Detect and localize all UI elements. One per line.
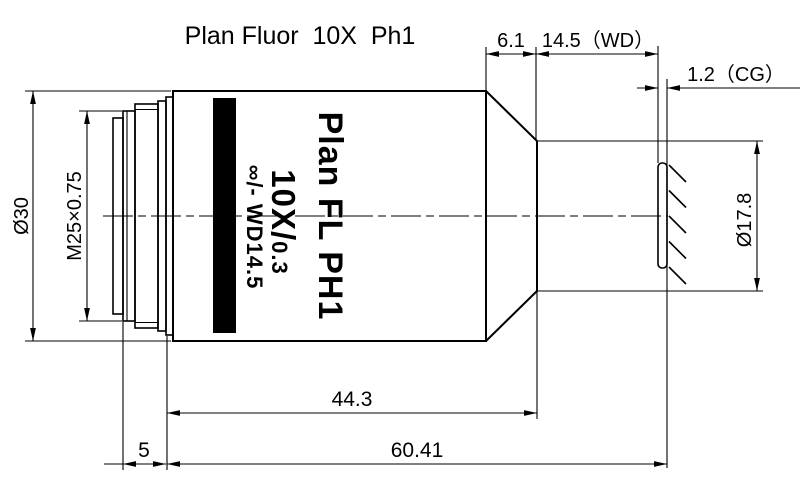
dim-body-diameter-value: Ø30 [11,197,33,235]
dim-mount-thread-value: M25×0.75 [64,171,86,261]
dim-body-diameter: Ø30 [11,91,33,341]
dim-cone-length-value: 6.1 [497,30,525,52]
dim-working-distance: 14.5（WD） [536,29,658,54]
hatch-mark [669,216,686,233]
marking-series-label: Plan FL PH1 [311,112,349,321]
drawing-title: Plan Fluor 10X Ph1 [185,22,416,50]
hatch-mark [669,165,686,182]
drawing-canvas: Plan Fluor 10X Ph1 Plan FL PH1 10X/0.3 ∞… [0,0,802,499]
hatch-mark [669,242,686,259]
hatch-mark [669,267,686,284]
dim-parfocal-distance-value: 60.41 [391,439,444,462]
objective-technical-drawing: Plan Fluor 10X Ph1 Plan FL PH1 10X/0.3 ∞… [0,0,802,499]
dim-shoulder-to-front: 44.3 [167,388,537,413]
nose-cone-bottom-edge [486,291,537,341]
marking-magnification: 10X/ [265,169,302,241]
dim-cover-glass-thickness: 1.2（CG） [637,63,800,88]
specimen-hatch-marks [669,165,686,284]
dim-cone-length: 6.1 [486,30,536,54]
dim-front-diameter: Ø17.8 [734,141,757,291]
barrel-marking: Plan FL PH1 10X/0.3 ∞/- WD14.5 [242,112,349,321]
marking-magnification-label: 10X/0.3 [265,169,302,274]
dim-mount-thread: M25×0.75 [64,111,87,321]
magnification-color-band [213,98,236,333]
marking-tube-wd-label: ∞/- WD14.5 [242,165,267,290]
dim-working-distance-value: 14.5（WD） [542,29,654,52]
nose-cone-top-edge [486,91,537,141]
dim-shoulder-to-front-value: 44.3 [332,388,373,411]
hatch-mark [669,191,686,208]
dim-front-diameter-value: Ø17.8 [734,193,756,247]
marking-numerical-aperture: 0.3 [267,241,292,275]
cover-glass [658,163,686,284]
dim-thread-length: 5 [104,439,166,464]
dim-thread-length-value: 5 [138,439,150,462]
dim-parfocal-distance: 60.41 [167,439,667,464]
dim-cover-glass-value: 1.2（CG） [687,63,785,86]
